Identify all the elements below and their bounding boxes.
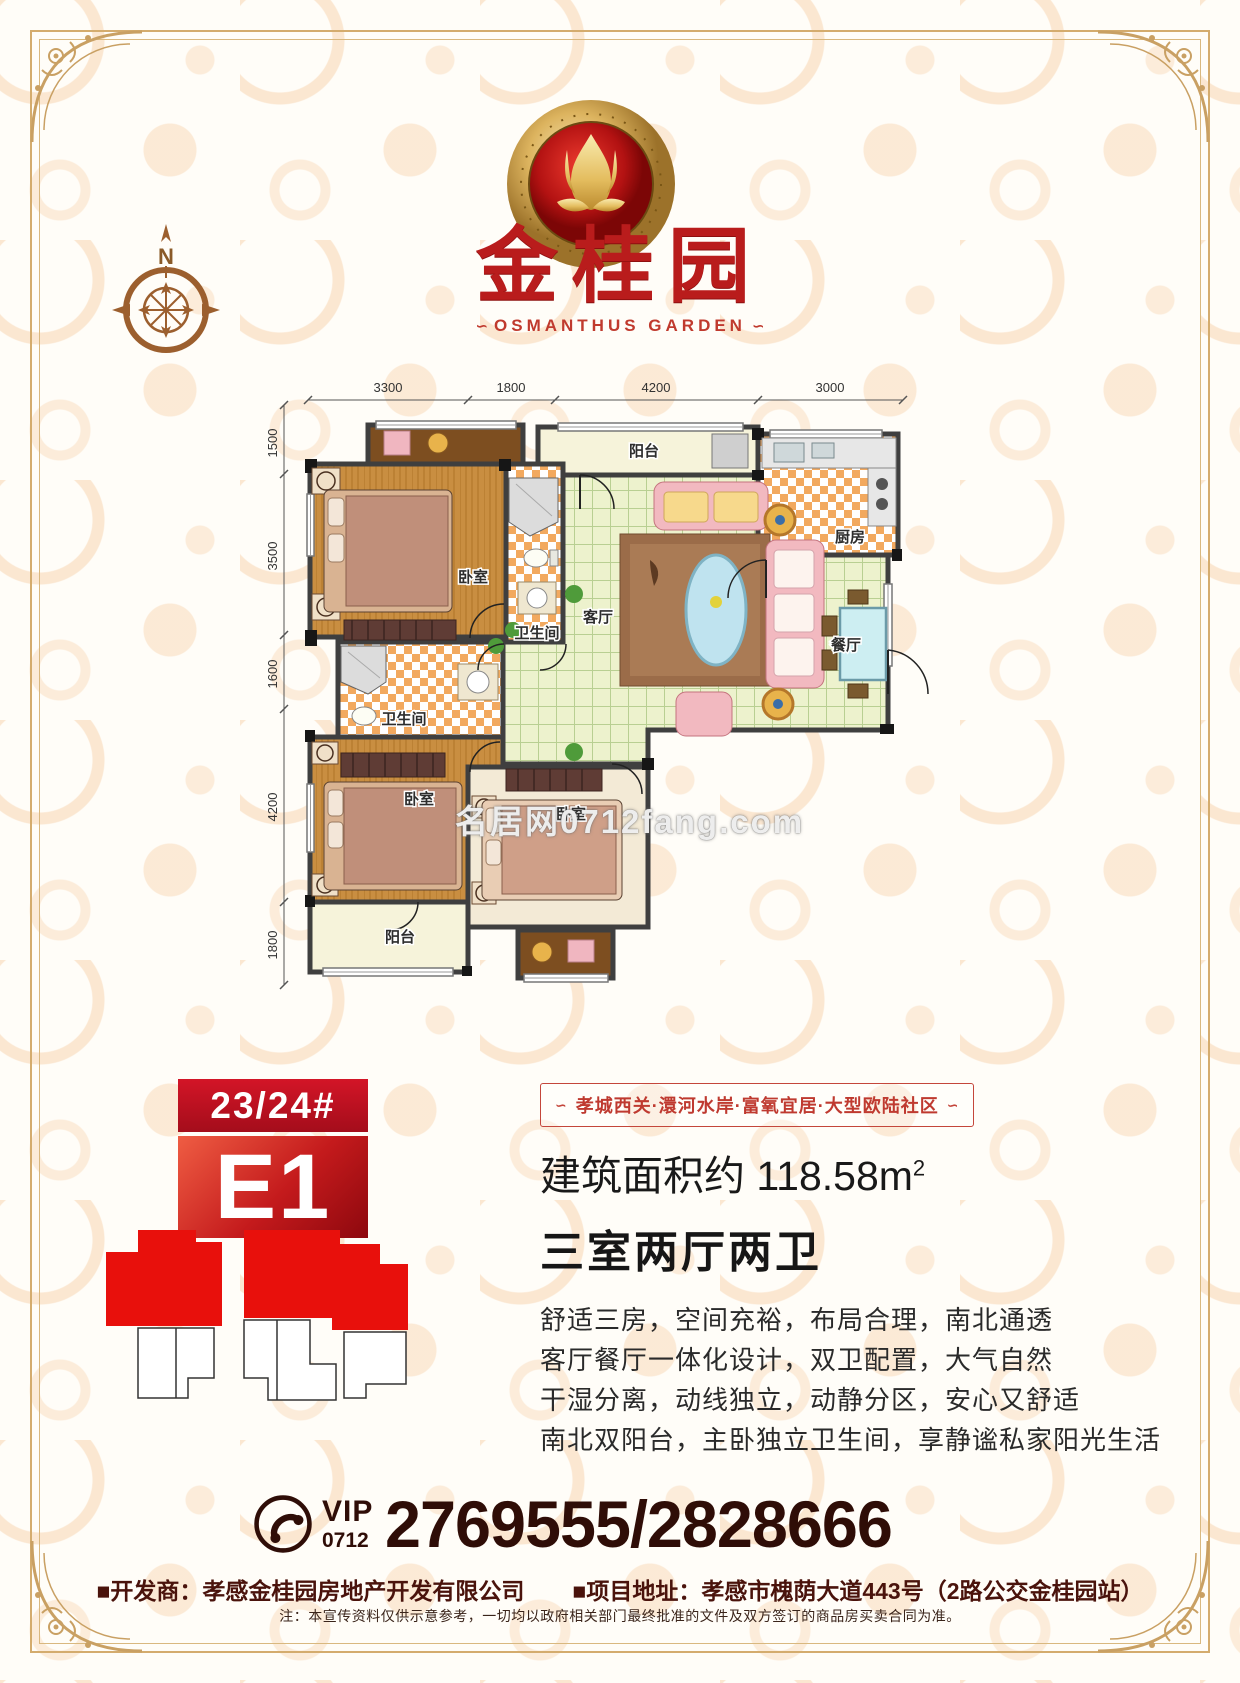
disclaimer-note: 注：本宣传资料仅供示意参考，一切均以政府相关部门最终批准的文件及双方签订的商品房… <box>0 1606 1240 1626</box>
label-bedroom3: 卧室 <box>556 805 586 823</box>
dim-left-5: 1800 <box>268 931 280 960</box>
footer-info: ■开发商：孝感金桂园房地产开发有限公司 ■项目地址：孝感市槐荫大道443号（2路… <box>120 1572 1120 1606</box>
phone-icon <box>252 1493 314 1555</box>
slogan-banner: ∽ 孝城西关·澴河水岸·富氧宜居·大型欧陆社区 ∽ <box>540 1083 974 1127</box>
dimension-top: 3300 1800 4200 3000 <box>304 382 907 404</box>
poster-page: N <box>0 0 1240 1683</box>
slogan-text: 孝城西关·澴河水岸·富氧宜居·大型欧陆社区 <box>576 1092 939 1118</box>
corner-flourish-icon <box>1094 26 1214 146</box>
banner-flourish-left: ∽ <box>555 1097 568 1114</box>
dimension-left: 1500 3500 1600 4200 1800 <box>268 401 288 989</box>
label-living: 客厅 <box>582 608 613 626</box>
dim-top-3: 4200 <box>642 382 671 395</box>
dim-top-2: 1800 <box>497 382 526 395</box>
label-bath2: 卫生间 <box>381 710 426 728</box>
dim-left-2: 3500 <box>268 542 280 571</box>
description-line: 客厅餐厅一体化设计，双卫配置，大气自然 <box>540 1340 1161 1380</box>
label-dining: 餐厅 <box>831 636 861 654</box>
label-balcony-top: 阳台 <box>629 442 659 460</box>
subtitle-flourish-left: ∽ <box>469 318 494 335</box>
building-number-badge: 23/24# <box>178 1079 368 1132</box>
phone-number: 2769555/2828666 <box>385 1486 892 1562</box>
floorplan-svg: 3300 1800 4200 3000 1500 3500 1600 4200 … <box>268 382 930 1000</box>
site-key-plan <box>92 1222 428 1404</box>
label-bedroom2: 卧室 <box>404 790 434 808</box>
site-outline-blocks <box>138 1320 406 1400</box>
subtitle-text: OSMANTHUS GARDEN <box>494 316 746 335</box>
label-bedroom-master: 卧室 <box>458 568 488 586</box>
label-bath1: 卫生间 <box>514 624 559 642</box>
developer-info: ■开发商：孝感金桂园房地产开发有限公司 <box>97 1572 525 1606</box>
banner-flourish-right: ∽ <box>947 1097 960 1114</box>
floorplan: 3300 1800 4200 3000 1500 3500 1600 4200 … <box>268 382 930 1000</box>
description: 舒适三房，空间充裕，布局合理，南北通透 客厅餐厅一体化设计，双卫配置，大气自然 … <box>540 1300 1161 1460</box>
description-line: 舒适三房，空间充裕，布局合理，南北通透 <box>540 1300 1161 1340</box>
dim-top-4: 3000 <box>816 382 845 395</box>
dim-top-1: 3300 <box>374 382 403 395</box>
dim-left-4: 4200 <box>268 793 280 822</box>
dim-left-3: 1600 <box>268 660 280 689</box>
dim-left-1: 1500 <box>268 429 280 458</box>
label-balcony-bottom: 阳台 <box>385 928 415 946</box>
floor-area: 建筑面积约 118.58m2 <box>540 1142 925 1202</box>
layout-type: 三室两厅两卫 <box>540 1216 822 1280</box>
address-info: ■项目地址：孝感市槐荫大道443号（2路公交金桂园站） <box>572 1572 1143 1606</box>
description-line: 南北双阳台，主卧独立卫生间，享静谧私家阳光生活 <box>540 1420 1161 1460</box>
corner-flourish-icon <box>26 26 146 146</box>
page-title: 金桂园 <box>0 226 1240 308</box>
vip-label: VIP <box>322 1497 373 1527</box>
floor-area-text: 建筑面积约 118.58m <box>540 1153 913 1199</box>
label-kitchen: 厨房 <box>835 528 865 546</box>
page-subtitle: ∽OSMANTHUS GARDEN∽ <box>0 316 1240 336</box>
site-highlight-blocks <box>106 1230 408 1330</box>
subtitle-flourish-right: ∽ <box>746 318 771 335</box>
description-line: 干湿分离，动线独立，动静分区，安心又舒适 <box>540 1380 1161 1420</box>
floor-area-sup: 2 <box>913 1155 925 1180</box>
vip-label-group: VIP 0712 <box>322 1497 373 1551</box>
contact-row: VIP 0712 2769555/2828666 <box>252 1486 903 1562</box>
area-code: 0712 <box>322 1530 373 1551</box>
